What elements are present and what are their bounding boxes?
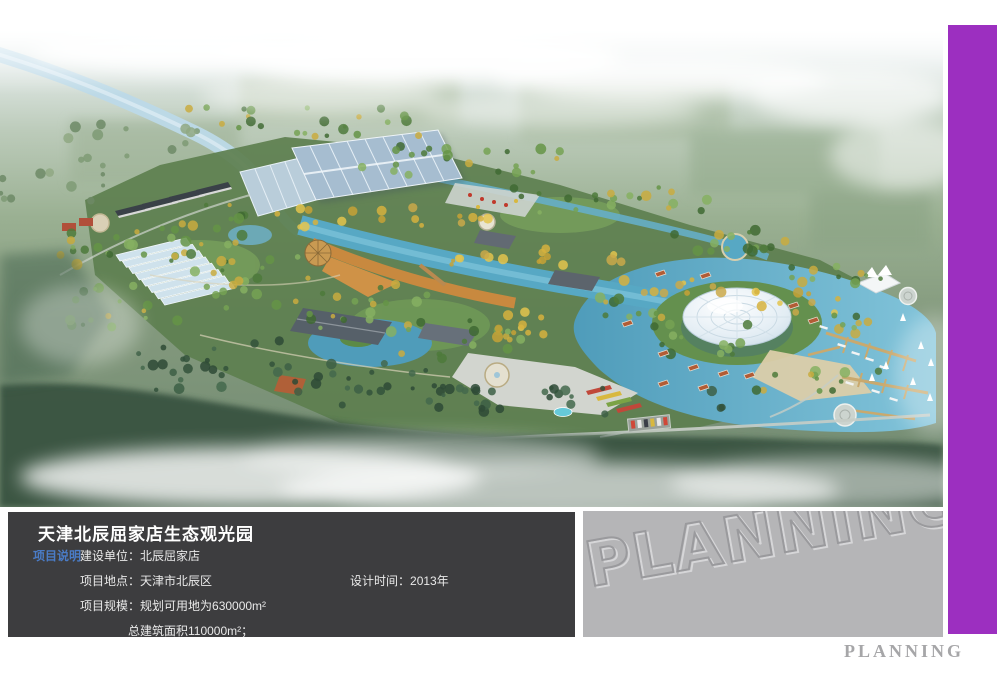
planning-footer-brand: PLANNING: [844, 641, 964, 662]
pavilion: [305, 240, 331, 266]
location-label: 项目地点：: [80, 574, 140, 588]
floor-area-value: 总建筑面积110000m²；: [128, 624, 253, 638]
design-time: 设计时间：2013年: [350, 572, 449, 589]
scale-label: 项目规模：: [80, 599, 140, 613]
construction-unit-value: 北辰屈家店: [140, 549, 200, 563]
project-title: 天津北辰屈家店生态观光园: [38, 520, 254, 545]
location-value: 天津市北辰区: [140, 574, 212, 588]
planning-watermark-outline: PLANNING: [583, 511, 943, 602]
info-row-construction-unit: 建设单位：北辰屈家店: [80, 547, 200, 564]
planning-watermark: PLANNING PLANNING: [583, 511, 943, 602]
design-time-value: 2013年: [410, 574, 449, 588]
planning-watermark-panel: PLANNING PLANNING: [583, 511, 943, 637]
circular-plaza: [91, 214, 109, 232]
info-row-location: 项目地点：天津市北辰区 设计时间：2013年: [80, 572, 212, 589]
design-time-label: 设计时间：: [350, 574, 410, 588]
project-info-panel: 天津北辰屈家店生态观光园 项目说明 建设单位：北辰屈家店 项目地点：天津市北辰区…: [8, 512, 575, 637]
horizon-haze: [0, 25, 943, 95]
aerial-rendering-svg: [0, 25, 943, 507]
info-row-scale: 项目规模：规划可用地为630000m²: [80, 597, 266, 614]
aerial-rendering: [0, 25, 943, 507]
section-label: 项目说明: [33, 547, 81, 564]
presentation-board: 天津北辰屈家店生态观光园 项目说明 建设单位：北辰屈家店 项目地点：天津市北辰区…: [0, 0, 1000, 678]
info-row-floor-area: 总建筑面积110000m²；: [80, 622, 253, 639]
scale-value: 规划可用地为630000m²: [140, 599, 266, 613]
purple-accent-stripe: [948, 25, 997, 634]
construction-unit-label: 建设单位：: [80, 549, 140, 563]
cyan-pool: [554, 408, 572, 417]
sports-court-2: [79, 218, 93, 226]
